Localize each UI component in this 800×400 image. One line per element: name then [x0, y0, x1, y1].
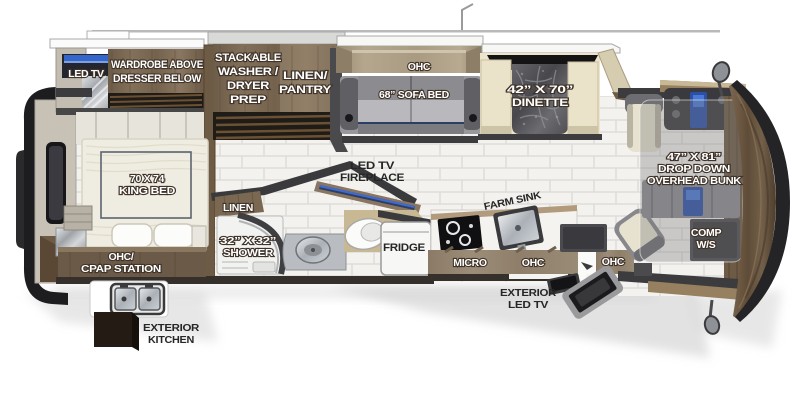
svg-text:OHC: OHC: [408, 61, 431, 73]
svg-text:70 X 74: 70 X 74: [130, 173, 165, 185]
svg-text:OHC: OHC: [602, 256, 625, 268]
svg-text:EXTERIOR: EXTERIOR: [500, 287, 557, 299]
svg-text:FRIDGE: FRIDGE: [383, 242, 425, 254]
svg-text:COMP: COMP: [691, 227, 722, 239]
svg-text:42” X 70”: 42” X 70”: [507, 84, 573, 96]
svg-text:OHC/: OHC/: [108, 251, 133, 263]
svg-text:LINEN: LINEN: [223, 202, 253, 214]
svg-text:DROP DOWN: DROP DOWN: [658, 163, 730, 175]
svg-text:32” X 32”: 32” X 32”: [220, 235, 276, 247]
svg-text:KING BED: KING BED: [119, 185, 176, 197]
svg-text:W/S: W/S: [697, 239, 716, 251]
svg-text:LED TV: LED TV: [508, 299, 548, 311]
svg-text:EXTERIOR: EXTERIOR: [143, 322, 200, 334]
svg-text:FIREPLACE: FIREPLACE: [340, 172, 404, 184]
svg-text:OHC: OHC: [522, 257, 545, 269]
svg-text:SHOWER: SHOWER: [223, 247, 274, 259]
svg-text:WASHER /: WASHER /: [218, 66, 278, 78]
svg-text:PANTRY: PANTRY: [279, 84, 332, 96]
svg-text:DRYER: DRYER: [227, 80, 269, 92]
svg-text:WARDROBE ABOVE: WARDROBE ABOVE: [111, 59, 203, 71]
svg-text:STACKABLE: STACKABLE: [215, 52, 281, 64]
svg-text:KITCHEN: KITCHEN: [148, 334, 194, 346]
svg-text:PREP: PREP: [230, 94, 266, 106]
svg-text:OVERHEAD BUNK: OVERHEAD BUNK: [647, 175, 742, 187]
svg-text:DRESSER BELOW: DRESSER BELOW: [113, 73, 202, 85]
svg-text:LED TV: LED TV: [350, 160, 395, 172]
svg-text:DINETTE: DINETTE: [512, 97, 568, 109]
svg-text:MICRO: MICRO: [453, 257, 487, 269]
svg-text:47” X 81”: 47” X 81”: [667, 151, 721, 163]
svg-text:LED TV: LED TV: [68, 68, 104, 80]
svg-text:68” SOFA BED: 68” SOFA BED: [379, 89, 450, 101]
svg-text:CPAP STATION: CPAP STATION: [81, 263, 161, 275]
svg-text:LINEN/: LINEN/: [283, 70, 327, 82]
